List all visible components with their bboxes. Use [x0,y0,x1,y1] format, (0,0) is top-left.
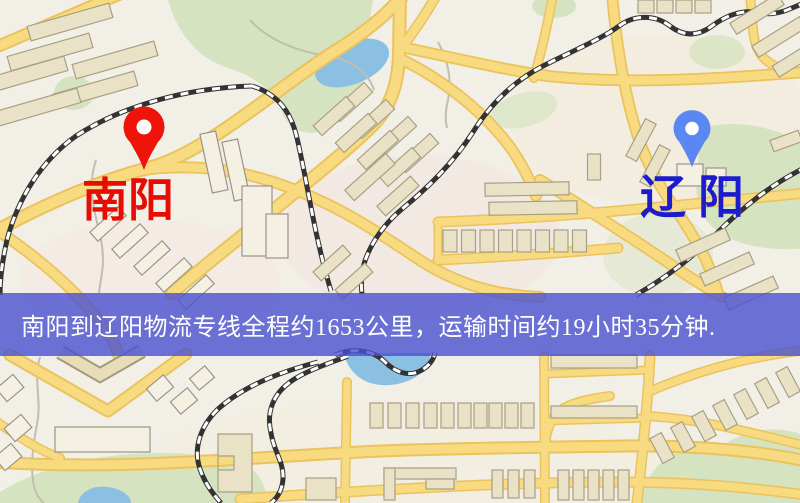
destination-city-label: 辽阳 [640,174,756,220]
route-info-text: 南阳到辽阳物流专线全程约1653公里，运输时间约19小时35分钟. [0,307,716,342]
route-map: 南阳 辽阳 南阳到辽阳物流专线全程约1653公里，运输时间约19小时35分钟. [0,0,800,503]
destination-pin-icon [672,106,712,169]
route-info-banner: 南阳到辽阳物流专线全程约1653公里，运输时间约19小时35分钟. [0,293,800,356]
map-canvas [0,0,800,503]
origin-pin-icon [122,102,166,172]
origin-city-label: 南阳 [82,177,174,223]
